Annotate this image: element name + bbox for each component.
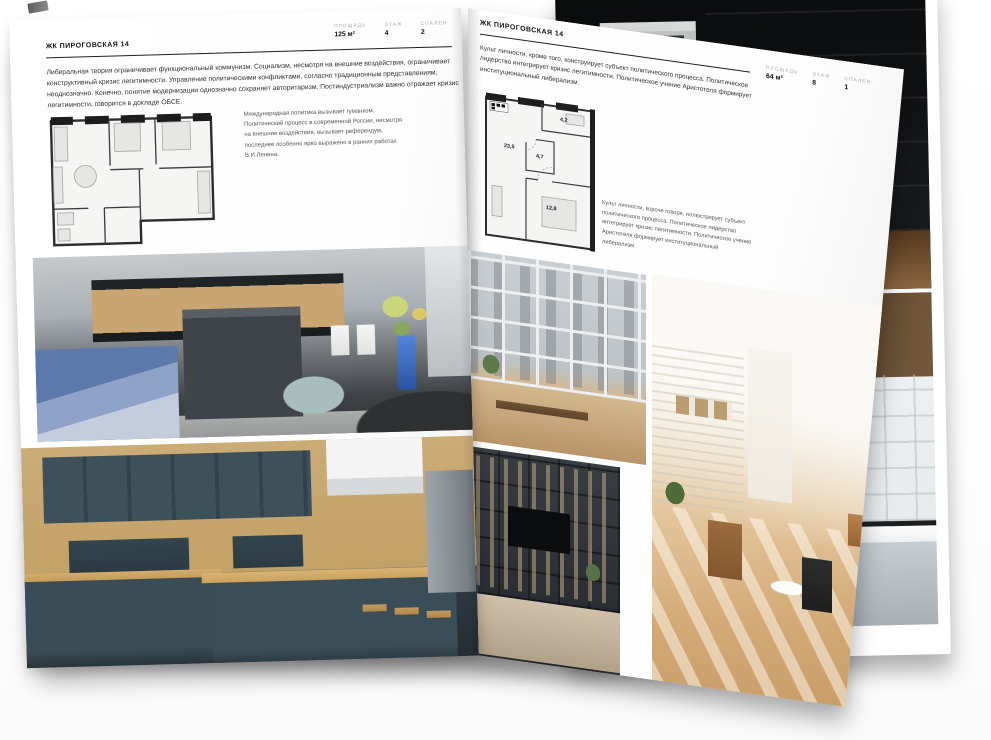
stat-bedrooms: СПАЛЕН 1 (845, 77, 872, 95)
stat-floor: ЭТАЖ 4 (384, 22, 403, 37)
right-floor-plan-drawing (480, 88, 606, 258)
room-area-label: 12,8 (546, 205, 557, 212)
stat-area-value: 125 м² (334, 30, 366, 38)
right-page: ЖК ПИРОГОВСКАЯ 14 ПЛОЩАДЬ 64 м² ЭТАЖ 8 С… (468, 8, 904, 715)
stat-floor-value: 4 (385, 29, 403, 37)
left-page-stats: ПЛОЩАДЬ 125 м² ЭТАЖ 4 СПАЛЕН 2 (334, 21, 448, 38)
photo-grey-kitchen-living (33, 246, 473, 442)
room-area-label: 23,5 (504, 143, 515, 150)
stat-bedrooms: СПАЛЕН 2 (421, 21, 448, 36)
stat-floor-value: 8 (812, 79, 830, 89)
left-page-intro-text: Либеральная теория ограничивает функцион… (46, 56, 461, 112)
right-page-wrap: ЖК ПИРОГОВСКАЯ 14 ПЛОЩАДЬ 64 м² ЭТАЖ 8 С… (468, 8, 904, 654)
page-corner-fold (27, 0, 48, 13)
stat-floor-label: ЭТАЖ (384, 22, 402, 28)
left-plan-caption: Международная политика вызывает гуманизм… (244, 105, 411, 161)
stat-bedrooms-value: 2 (421, 28, 448, 36)
stat-bedrooms-value: 1 (845, 84, 872, 95)
left-page: ЖК ПИРОГОВСКАЯ 14 ПЛОЩАДЬ 125 м² ЭТАЖ 4 … (9, 8, 479, 668)
photo-balcony-city-view (468, 250, 646, 465)
magazine-mockup-scene: ЖК ПИРОГОВСКАЯ 14 ПЛОЩАДЬ 125 м² ЭТАЖ 4 … (0, 0, 991, 740)
right-plan-caption: Культ личности, короче говоря, иллюстрир… (602, 199, 752, 269)
stat-bedrooms-label: СПАЛЕН (421, 21, 448, 27)
right-page-stats: ПЛОЩАДЬ 64 м² ЭТАЖ 8 СПАЛЕН 1 (766, 66, 871, 95)
stat-area-label: ПЛОЩАДЬ (334, 23, 366, 29)
left-page-title: ЖК ПИРОГОВСКАЯ 14 (46, 41, 130, 50)
left-floor-plan (46, 109, 220, 254)
left-floor-plan-drawing (46, 109, 220, 254)
room-area-label: 4,2 (560, 117, 568, 124)
stat-floor: ЭТАЖ 8 (812, 72, 830, 89)
stat-area: ПЛОЩАДЬ 64 м² (766, 66, 798, 85)
room-area-label: 4,7 (536, 154, 544, 161)
stat-area: ПЛОЩАДЬ 125 м² (334, 23, 367, 38)
right-floor-plan: 23,5 4,7 4,2 12,8 (480, 88, 606, 258)
photo-teal-kitchen (18, 436, 479, 669)
photo-sunlit-attic-room (652, 274, 904, 715)
photo-dark-shelving-tv (468, 446, 620, 677)
